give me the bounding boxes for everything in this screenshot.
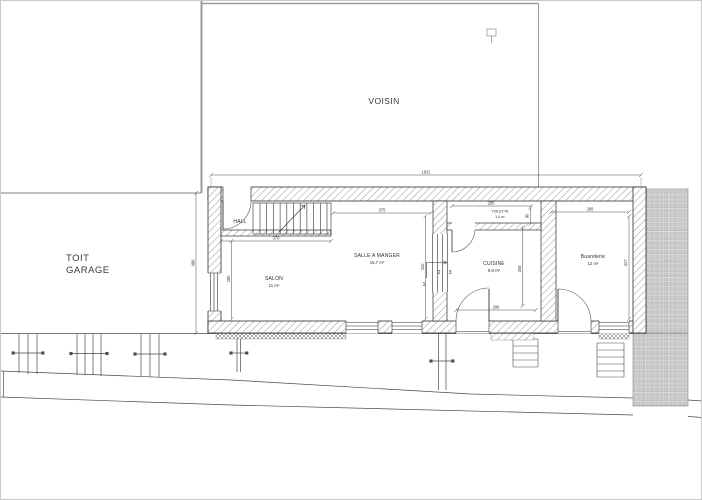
hall-label: HALL — [233, 219, 246, 225]
left-wall-window — [208, 273, 222, 311]
window-sill-strips — [216, 334, 629, 341]
step-number-1: 1 — [423, 282, 426, 288]
dimension-salle-height: 410 — [420, 263, 425, 271]
step-number-2: 2 — [438, 270, 441, 276]
dimension-total-width: 1931 — [421, 170, 431, 175]
floor-plan-drawing: VOISIN TOIT GARAGE — [1, 1, 702, 500]
buanderie-area: 12 m² — [588, 261, 600, 266]
salon-label: SALON — [265, 276, 283, 282]
toilette-area: 1,4 m² — [495, 215, 505, 219]
dimension-hall-bottom: 370 — [273, 236, 281, 241]
garage-roof-label: TOIT GARAGE — [66, 253, 110, 276]
dining-window-1 — [346, 321, 378, 334]
salle-a-manger-area: 15,7 m² — [370, 260, 385, 265]
exterior-steps-cuisine — [513, 339, 538, 367]
dining-window-2 — [392, 321, 422, 334]
dimension-left-height: 488 — [191, 259, 196, 267]
interior-walls — [221, 201, 556, 321]
garage-label-line1: TOIT — [66, 253, 89, 264]
main-staircase — [253, 203, 331, 234]
toilette-door — [452, 223, 475, 253]
exterior-walls — [208, 187, 646, 333]
dimension-toilette-height: 90 — [525, 213, 530, 218]
interior-steps: 1 2 3 — [423, 234, 452, 292]
dimension-toilette-width: 295 — [488, 201, 496, 206]
dimension-salle-top: 375 — [379, 208, 387, 213]
buanderie-door — [558, 289, 591, 334]
buanderie-label: Buanderie — [581, 254, 606, 260]
garage-label-line2: GARAGE — [66, 265, 110, 276]
dimension-buanderie-height: 417 — [623, 259, 628, 267]
neighbor-area-label: VOISIN — [368, 96, 399, 106]
cuisine-area: 9,8 m² — [488, 268, 501, 273]
exterior-steps-buanderie — [597, 343, 624, 377]
step-number-3: 3 — [449, 270, 452, 276]
salon-area: 11 m² — [269, 283, 280, 288]
cuisine-door — [456, 288, 489, 334]
fence-posts — [12, 334, 166, 377]
facade-posts — [230, 333, 454, 390]
cuisine-label: CUISINE — [483, 261, 505, 267]
salle-a-manger-label: SALLE A MANGER — [354, 253, 400, 259]
toilette-label: TOILETTE — [491, 210, 509, 214]
dimension-cuisine-height: 308 — [517, 265, 522, 273]
dimension-cuisine-width: 296 — [493, 305, 501, 310]
roof-vent-mark — [487, 29, 496, 43]
floor-plan-canvas: VOISIN TOIT GARAGE — [0, 0, 702, 500]
dimension-buanderie-width: 288 — [587, 207, 595, 212]
buanderie-window — [599, 321, 629, 334]
dimension-salon-height: 280 — [226, 275, 231, 283]
